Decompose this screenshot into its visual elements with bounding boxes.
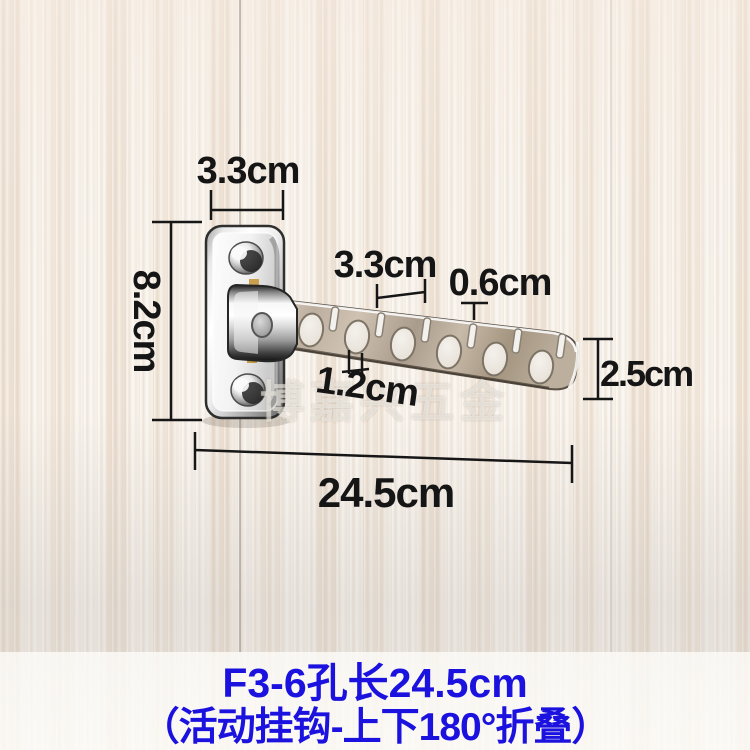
dimension-label-hole-spacing: 3.3cm bbox=[330, 246, 440, 284]
dimension-label-slot-width: 0.6cm bbox=[444, 264, 556, 302]
product-photo-canvas: 博嘉兴五金 3.3cm 8.2cm 3.3cm 0.6cm 1.2cm 2.5c… bbox=[0, 0, 750, 750]
screw-top bbox=[229, 242, 263, 274]
hinge-rivet bbox=[252, 313, 272, 337]
dim-line-slot-width bbox=[461, 303, 488, 320]
dim-line-plate-width bbox=[211, 190, 283, 220]
caption-feature-line: （活动挂钩-上下180°折叠） bbox=[0, 708, 750, 747]
dimension-label-plate-height: 8.2cm bbox=[127, 261, 165, 381]
dimension-label-arm-height: 2.5cm bbox=[600, 356, 700, 392]
caption-model-line: F3-6孔长24.5cm bbox=[0, 663, 750, 704]
dimension-label-plate-width: 3.3cm bbox=[190, 152, 306, 190]
hinge-bracket bbox=[228, 279, 297, 363]
dimension-label-total-length: 24.5cm bbox=[306, 472, 466, 514]
